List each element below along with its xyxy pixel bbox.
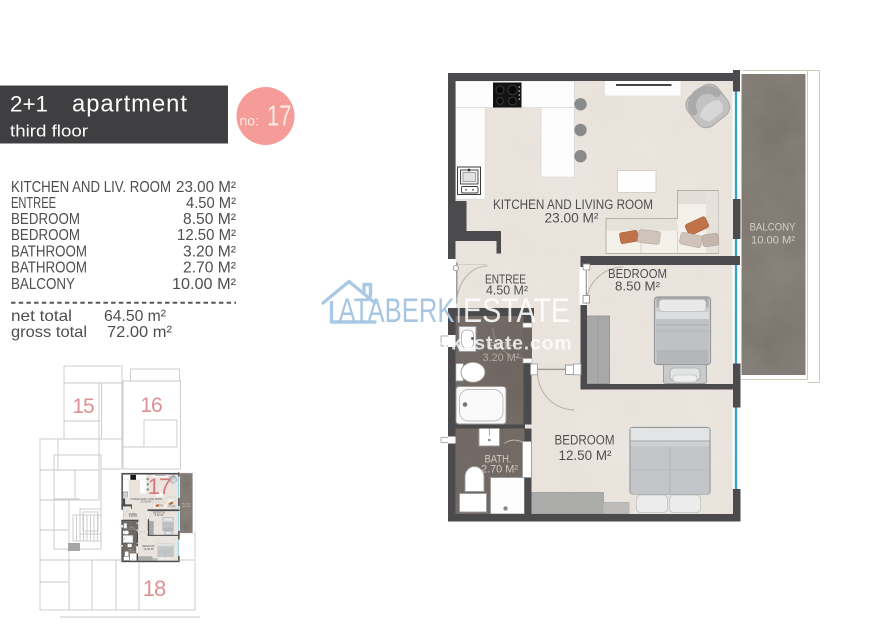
svg-text:ESTATE: ESTATE <box>463 292 570 330</box>
svg-text:BALCONY: BALCONY <box>750 222 797 234</box>
svg-text:apartment: apartment <box>72 91 188 118</box>
svg-text:2.70 M²: 2.70 M² <box>481 464 518 476</box>
svg-text:2.70 M²: 2.70 M² <box>183 260 236 277</box>
svg-text:ataberkestate.com: ataberkestate.com <box>388 333 573 355</box>
svg-text:BEDROOM: BEDROOM <box>11 211 80 228</box>
svg-text:BEDROOM: BEDROOM <box>555 433 615 448</box>
svg-text:ENTREE: ENTREE <box>11 195 56 212</box>
svg-text:12.50 M²: 12.50 M² <box>559 448 612 463</box>
svg-text:KITCHEN AND LIV. ROOM: KITCHEN AND LIV. ROOM <box>11 179 171 196</box>
svg-text:8.50 M²: 8.50 M² <box>615 279 661 294</box>
svg-text:18: 18 <box>143 576 166 601</box>
svg-text:net total: net total <box>11 308 72 325</box>
svg-text:BEDROOM: BEDROOM <box>11 227 80 244</box>
svg-text:no:: no: <box>240 113 259 129</box>
svg-text:64.50 m²: 64.50 m² <box>104 308 167 325</box>
svg-text:10.00 M²: 10.00 M² <box>172 276 236 293</box>
svg-text:72.00 m²: 72.00 m² <box>107 324 173 341</box>
svg-text:23.00 M²: 23.00 M² <box>545 211 600 226</box>
svg-text:12.50 M²: 12.50 M² <box>177 227 236 244</box>
svg-text:16: 16 <box>140 394 162 417</box>
svg-text:BALCONY: BALCONY <box>11 276 75 293</box>
svg-text:2+1: 2+1 <box>10 92 48 117</box>
svg-text:8.50 M²: 8.50 M² <box>183 211 236 228</box>
svg-text:BATHROOM: BATHROOM <box>11 260 87 277</box>
svg-text:15: 15 <box>72 395 94 418</box>
svg-text:17: 17 <box>148 474 171 499</box>
svg-text:4.50 M²: 4.50 M² <box>186 195 236 212</box>
svg-text:3.20 M²: 3.20 M² <box>183 244 236 261</box>
svg-text:23.00 M²: 23.00 M² <box>176 179 236 196</box>
svg-text:BATHROOM: BATHROOM <box>11 244 87 261</box>
svg-text:ATABERK: ATABERK <box>339 292 455 330</box>
svg-text:17: 17 <box>267 101 292 133</box>
svg-text:10.00 M²: 10.00 M² <box>751 235 795 247</box>
svg-text:third floor: third floor <box>10 123 89 141</box>
svg-text:gross total: gross total <box>11 324 87 341</box>
